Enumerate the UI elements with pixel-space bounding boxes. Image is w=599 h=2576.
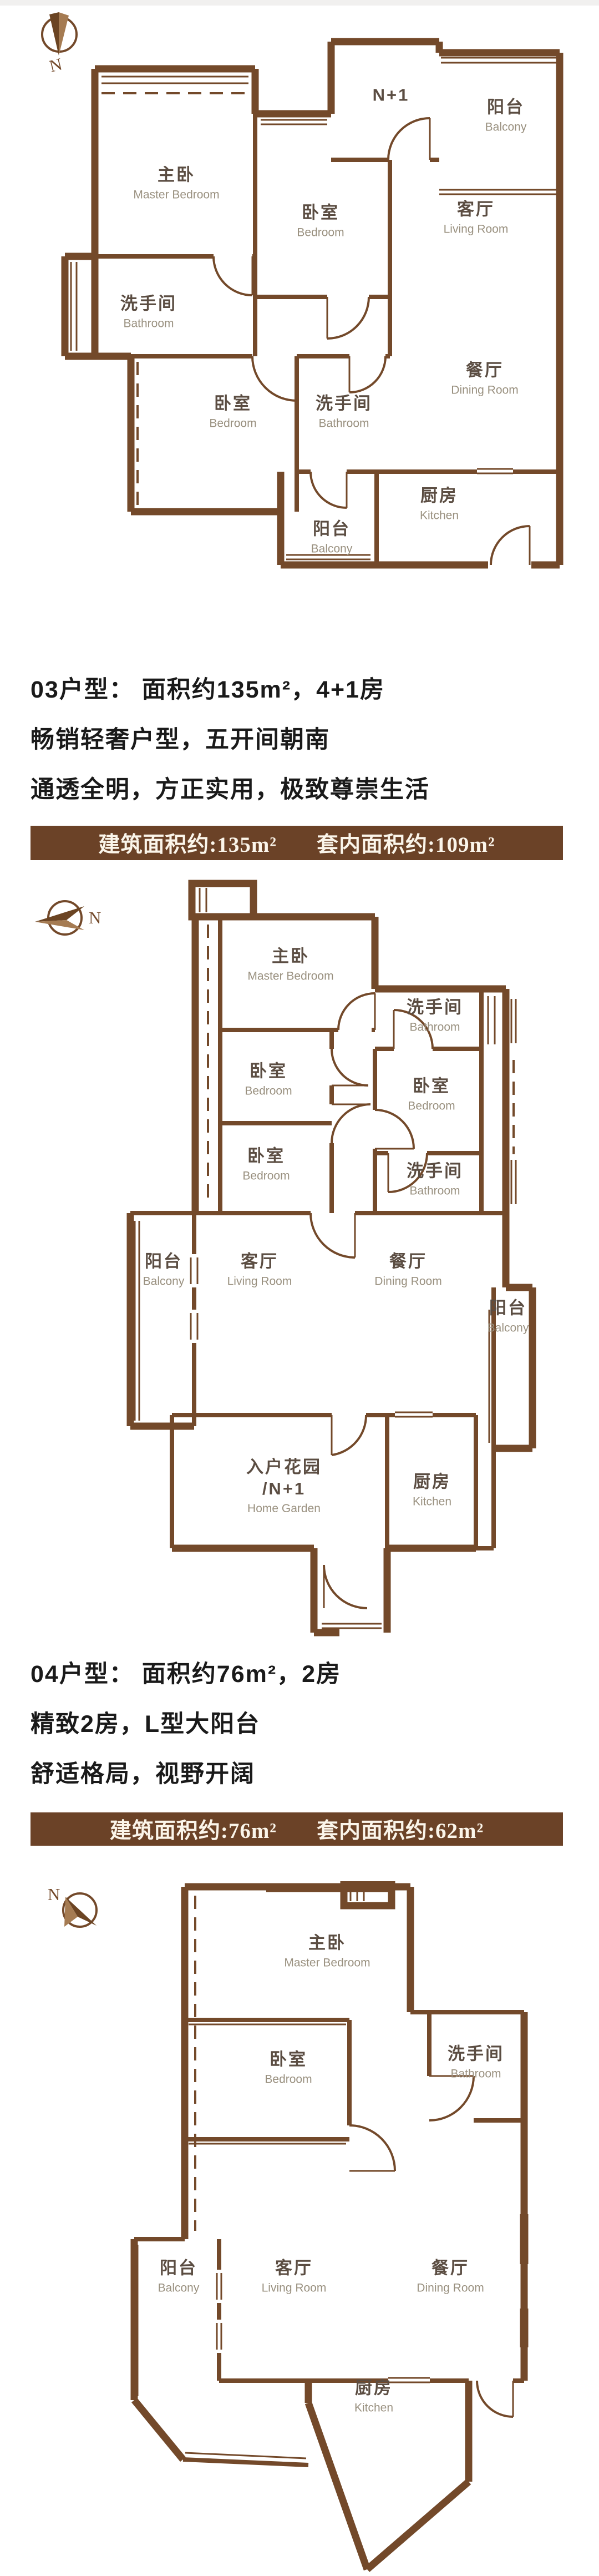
gross-area-text: 建筑面积约:135m² [98, 827, 277, 858]
room-label: 卧室Bedroom [297, 203, 344, 240]
room-label: 洗手间Bathroom [407, 1161, 463, 1198]
room-label: 洗手间Bathroom [407, 997, 463, 1034]
room-label: 阳台Balcony [311, 519, 353, 556]
room-label: 洗手间Bathroom [120, 294, 177, 331]
room-label: 洗手间Bathroom [316, 393, 372, 431]
floor-plan-04: N 主卧Master Bedroom卧室Bedroom洗手间Bathroom阳台… [0, 1881, 599, 2576]
room-label: 阳台Balcony [485, 97, 527, 134]
room-label: 主卧Master Bedroom [284, 1933, 370, 1970]
room-label: 阳台Balcony [143, 1251, 185, 1289]
unit-feature-line: 精致2房，L型大阳台 [31, 1699, 580, 1749]
room-label: 厨房Kitchen [354, 2378, 393, 2415]
page: N 主卧Master Bedroom卧室BedroomN+1阳台Balcony客… [0, 0, 599, 2576]
floor-plan-top: N 主卧Master Bedroom卧室BedroomN+1阳台Balcony客… [0, 0, 599, 599]
area-banner-04: 建筑面积约:76m² 套内面积约:62m² [31, 1812, 563, 1846]
room-label: 入户花园/N+1Home Garden [246, 1457, 322, 1516]
unit-feature-line: 通透全明，方正实用，极致尊崇生活 [31, 765, 580, 815]
room-label: 餐厅Dining Room [417, 2258, 484, 2295]
area-banner-03: 建筑面积约:135m² 套内面积约:109m² [31, 826, 563, 860]
inner-area-text: 套内面积约:109m² [317, 827, 495, 858]
unit-feature-line: 舒适格局，视野开阔 [31, 1749, 580, 1799]
inner-area-text: 套内面积约:62m² [317, 1814, 484, 1845]
room-label: 卧室Bedroom [245, 1061, 292, 1098]
floor-plan-03: N 主卧Master Bedroom洗手间Bathroom卧室Bedroom卧室… [0, 866, 599, 1643]
room-label: 阳台Balcony [158, 2258, 200, 2295]
room-label: 餐厅Dining Room [374, 1251, 441, 1289]
room-label: N+1 [373, 85, 410, 107]
room-label: 主卧Master Bedroom [133, 165, 219, 202]
room-label: 主卧Master Bedroom [247, 946, 333, 983]
room-labels-layer: 主卧Master Bedroom洗手间Bathroom卧室Bedroom卧室Be… [0, 866, 599, 1643]
description-block-04: 04户型： 面积约76m²，2房 精致2房，L型大阳台 舒适格局，视野开阔 [31, 1649, 580, 1799]
room-label: 卧室Bedroom [242, 1146, 290, 1183]
room-label: 厨房Kitchen [420, 486, 459, 523]
unit-title: 04户型： 面积约76m²，2房 [31, 1649, 580, 1699]
room-label: 卧室Bedroom [408, 1076, 455, 1113]
room-label: 客厅Living Room [262, 2258, 327, 2295]
room-label: 卧室Bedroom [265, 2049, 312, 2087]
room-label: 客厅Living Room [227, 1251, 292, 1289]
unit-feature-line: 畅销轻奢户型，五开间朝南 [31, 715, 580, 765]
room-labels-layer: 主卧Master Bedroom卧室Bedroom洗手间Bathroom阳台Ba… [0, 1881, 599, 2576]
gross-area-text: 建筑面积约:76m² [110, 1814, 277, 1845]
room-label: 客厅Living Room [444, 199, 509, 236]
room-label: 阳台Balcony [488, 1298, 529, 1335]
room-label: 厨房Kitchen [413, 1472, 451, 1509]
unit-title: 03户型： 面积约135m²，4+1房 [31, 665, 580, 715]
room-label: 洗手间Bathroom [448, 2044, 504, 2081]
description-block-03: 03户型： 面积约135m²，4+1房 畅销轻奢户型，五开间朝南 通透全明，方正… [31, 665, 580, 815]
room-label: 卧室Bedroom [209, 393, 256, 431]
room-labels-layer: 主卧Master Bedroom卧室BedroomN+1阳台Balcony客厅L… [0, 0, 599, 599]
room-label: 餐厅Dining Room [451, 360, 518, 397]
